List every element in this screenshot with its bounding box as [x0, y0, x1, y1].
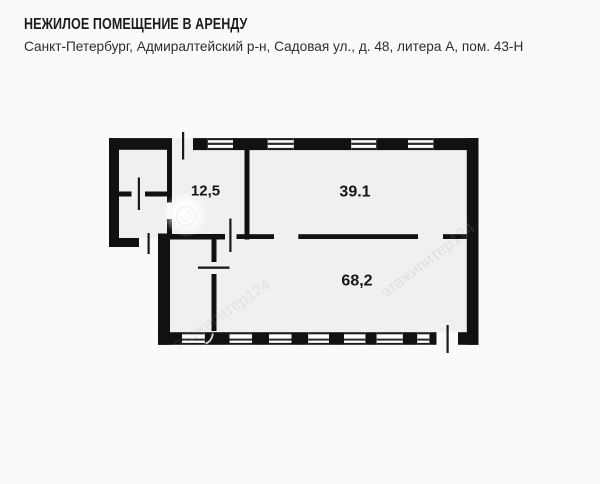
svg-text:12,5: 12,5: [191, 183, 220, 200]
svg-text:39.1: 39.1: [339, 184, 370, 201]
svg-text:68,2: 68,2: [341, 273, 372, 290]
